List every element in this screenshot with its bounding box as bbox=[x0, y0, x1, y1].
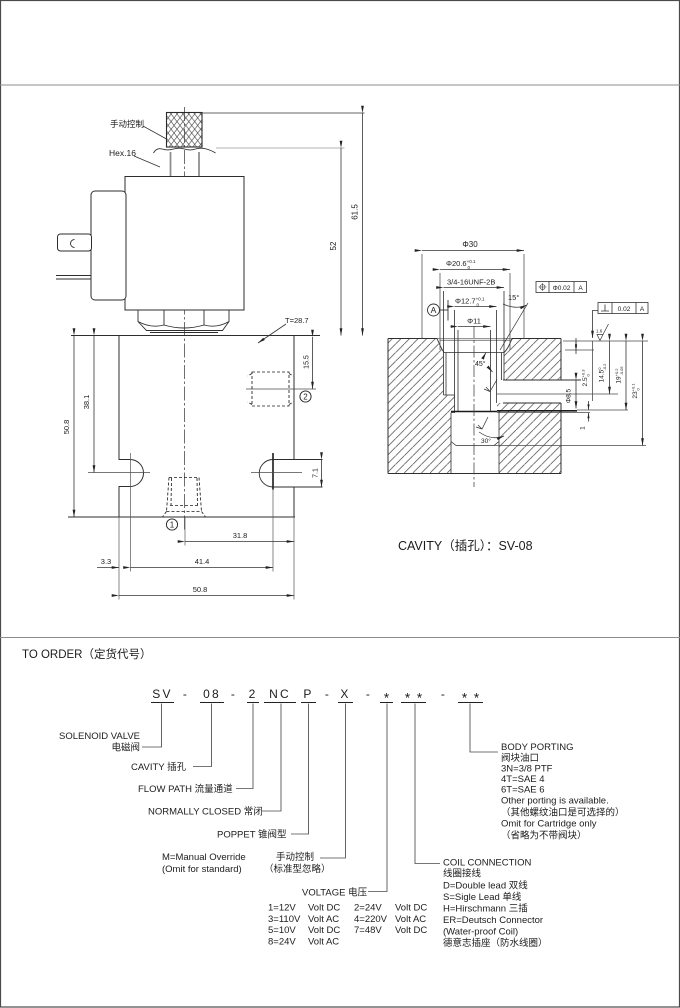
svg-text:1=12V: 1=12V bbox=[268, 903, 296, 914]
svg-text:7=48V: 7=48V bbox=[354, 925, 382, 936]
svg-text:FLOW PATH 流量通道: FLOW PATH 流量通道 bbox=[138, 783, 233, 795]
svg-text:X: X bbox=[340, 687, 350, 701]
svg-text:41.4: 41.4 bbox=[195, 557, 210, 566]
svg-text:2: 2 bbox=[249, 687, 258, 701]
svg-text:Omit for Cartridge only: Omit for Cartridge only bbox=[501, 819, 597, 830]
svg-text:*: * bbox=[384, 691, 390, 706]
svg-text:*: * bbox=[405, 691, 411, 706]
svg-text:SV: SV bbox=[152, 687, 172, 701]
svg-text:德意志插座（防水线圈）: 德意志插座（防水线圈） bbox=[443, 937, 548, 949]
svg-text:Φ20.6+0.10: Φ20.6+0.10 bbox=[446, 259, 476, 270]
svg-text:*: * bbox=[417, 691, 423, 706]
svg-text:45°: 45° bbox=[475, 360, 486, 368]
svg-text:CAVITY 插孔: CAVITY 插孔 bbox=[131, 761, 187, 773]
svg-text:Φ30: Φ30 bbox=[462, 240, 478, 249]
svg-text:ER=Deutsch Connector: ER=Deutsch Connector bbox=[443, 915, 543, 926]
svg-text:D=Double lead 双线: D=Double lead 双线 bbox=[443, 880, 528, 892]
svg-text:Volt DC: Volt DC bbox=[308, 925, 340, 936]
svg-text:14.50-0.2: 14.50-0.2 bbox=[597, 363, 607, 383]
svg-text:(Water-proof Coil): (Water-proof Coil) bbox=[443, 927, 518, 938]
svg-text:-: - bbox=[441, 687, 447, 701]
svg-text:-: - bbox=[183, 687, 189, 701]
svg-text:15°: 15° bbox=[508, 293, 519, 302]
svg-text:Φ12.7+0.10: Φ12.7+0.10 bbox=[455, 297, 485, 308]
svg-text:6T=SAE 6: 6T=SAE 6 bbox=[501, 785, 545, 796]
svg-text:手动控制: 手动控制 bbox=[276, 851, 314, 863]
svg-text:Volt DC: Volt DC bbox=[395, 903, 427, 914]
svg-text:A: A bbox=[578, 285, 583, 292]
svg-text:（标准型忽略）: （标准型忽略） bbox=[264, 863, 331, 875]
svg-text:4=220V: 4=220V bbox=[354, 914, 388, 925]
svg-text:SOLENOID VALVE: SOLENOID VALVE bbox=[59, 731, 140, 742]
svg-text:-: - bbox=[231, 687, 237, 701]
svg-text:38.1: 38.1 bbox=[82, 395, 91, 410]
svg-text:3.3: 3.3 bbox=[101, 557, 111, 566]
svg-text:Φ8.5: Φ8.5 bbox=[566, 389, 573, 404]
svg-text:P: P bbox=[303, 687, 313, 701]
svg-text:52: 52 bbox=[329, 241, 338, 250]
svg-text:(Omit for standard): (Omit for standard) bbox=[162, 864, 242, 875]
svg-text:M=Manual Override: M=Manual Override bbox=[162, 852, 246, 863]
svg-text:VOLTAGE 电压: VOLTAGE 电压 bbox=[302, 887, 368, 899]
svg-text:Other porting is available.: Other porting is available. bbox=[501, 796, 609, 807]
svg-text:8=24V: 8=24V bbox=[268, 937, 296, 948]
svg-text:1.6: 1.6 bbox=[596, 329, 603, 334]
svg-text:Φ0.02: Φ0.02 bbox=[553, 285, 571, 292]
svg-text:CAVITY（插孔）：SV-08: CAVITY（插孔）：SV-08 bbox=[398, 539, 533, 553]
svg-text:T=28.7: T=28.7 bbox=[285, 316, 309, 325]
svg-text:手动控制: 手动控制 bbox=[110, 119, 144, 129]
svg-text:POPPET 锥阀型: POPPET 锥阀型 bbox=[217, 829, 287, 841]
svg-text:Volt AC: Volt AC bbox=[308, 937, 339, 948]
svg-text:30°: 30° bbox=[481, 437, 491, 445]
svg-text:*: * bbox=[474, 691, 480, 706]
svg-text:A: A bbox=[640, 306, 645, 313]
svg-text:线圈接线: 线圈接线 bbox=[443, 868, 482, 880]
svg-text:阀块油口: 阀块油口 bbox=[501, 752, 539, 764]
svg-text:Volt AC: Volt AC bbox=[395, 914, 426, 925]
svg-text:A: A bbox=[431, 305, 437, 315]
svg-text:1: 1 bbox=[580, 426, 587, 430]
svg-text:Φ11: Φ11 bbox=[467, 317, 481, 326]
svg-text:3=110V: 3=110V bbox=[268, 914, 301, 925]
svg-text:3/4-16UNF-2B: 3/4-16UNF-2B bbox=[447, 278, 495, 287]
svg-text:2.5+0.30: 2.5+0.30 bbox=[581, 369, 591, 387]
svg-text:1: 1 bbox=[170, 521, 175, 530]
svg-text:Volt DC: Volt DC bbox=[395, 925, 427, 936]
svg-text:（省略为不带阀块）: （省略为不带阀块） bbox=[501, 830, 587, 842]
svg-text:Hex.16: Hex.16 bbox=[109, 148, 136, 158]
svg-text:（其他螺纹油口是可选择的）: （其他螺纹油口是可选择的） bbox=[501, 807, 625, 819]
svg-text:31.8: 31.8 bbox=[233, 531, 248, 540]
svg-text:-: - bbox=[325, 687, 331, 701]
svg-text:H=Hirschmann 三插: H=Hirschmann 三插 bbox=[443, 903, 528, 915]
svg-text:-: - bbox=[366, 687, 372, 701]
svg-text:4T=SAE 4: 4T=SAE 4 bbox=[501, 774, 545, 785]
svg-text:08: 08 bbox=[203, 687, 221, 701]
svg-text:2: 2 bbox=[303, 393, 308, 402]
svg-text:19+0.2-0.05: 19+0.2-0.05 bbox=[614, 366, 624, 384]
svg-text:Volt DC: Volt DC bbox=[308, 903, 340, 914]
svg-text:S=Sigle Lead 单线: S=Sigle Lead 单线 bbox=[443, 891, 522, 903]
svg-text:2=24V: 2=24V bbox=[354, 903, 382, 914]
svg-text:COIL CONNECTION: COIL CONNECTION bbox=[443, 858, 531, 869]
svg-text:Volt AC: Volt AC bbox=[308, 914, 339, 925]
svg-text:50.8: 50.8 bbox=[193, 585, 208, 594]
svg-text:0.02: 0.02 bbox=[618, 306, 631, 313]
svg-text:BODY PORTING: BODY PORTING bbox=[501, 742, 574, 753]
svg-text:15.5: 15.5 bbox=[304, 355, 311, 369]
svg-text:NC: NC bbox=[269, 687, 291, 701]
svg-text:3N=3/8 PTF: 3N=3/8 PTF bbox=[501, 764, 553, 775]
svg-text:7.1: 7.1 bbox=[313, 468, 320, 478]
svg-text:*: * bbox=[462, 691, 468, 706]
svg-text:NORMALLY CLOSED 常闭: NORMALLY CLOSED 常闭 bbox=[148, 806, 263, 818]
svg-text:5=10V: 5=10V bbox=[268, 925, 296, 936]
svg-text:23+0.10: 23+0.10 bbox=[631, 383, 641, 399]
svg-text:50.8: 50.8 bbox=[62, 420, 71, 435]
svg-text:TO ORDER（定货代号）: TO ORDER（定货代号） bbox=[22, 647, 152, 661]
svg-text:61.5: 61.5 bbox=[351, 204, 360, 220]
svg-text:电磁阀: 电磁阀 bbox=[111, 742, 140, 754]
